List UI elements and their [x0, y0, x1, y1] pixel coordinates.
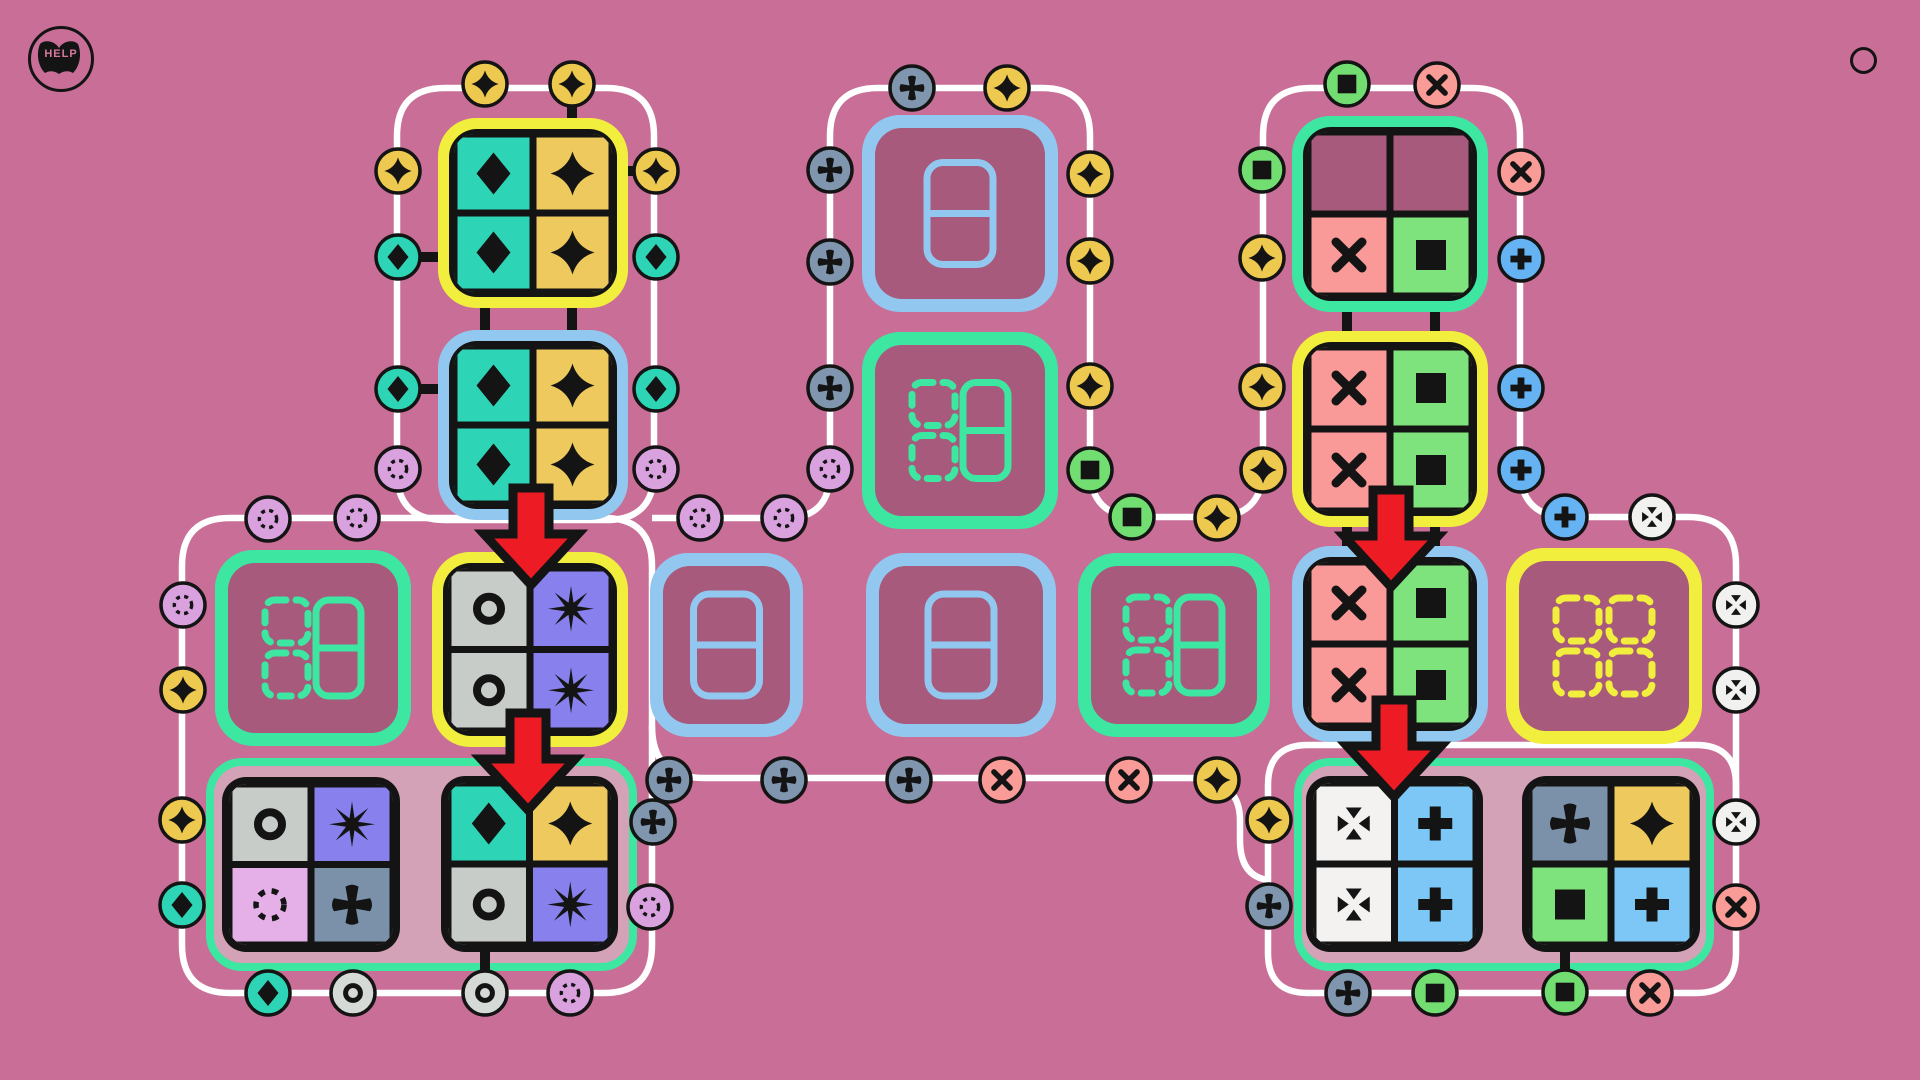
ring-badge	[463, 971, 507, 1015]
diamond-badge	[376, 235, 420, 279]
star4-badge	[1068, 364, 1112, 408]
cross-badge	[762, 758, 806, 802]
star4-badge	[376, 149, 420, 193]
cross-badge	[1326, 971, 1370, 1015]
converge-badge	[1714, 800, 1758, 844]
tile-cell	[1390, 132, 1472, 214]
empty-slot-M1[interactable]	[862, 115, 1058, 312]
plus-badge	[1543, 495, 1587, 539]
cross-badge	[1247, 884, 1291, 928]
square-badge	[1543, 970, 1587, 1014]
square-icon	[1416, 240, 1446, 270]
empty-slot-T1[interactable]	[650, 553, 803, 737]
empty-slot-M2[interactable]	[862, 332, 1058, 529]
star4-badge	[1241, 448, 1285, 492]
diamond-badge	[634, 235, 678, 279]
tile-cell	[1308, 132, 1390, 214]
empty-slot-E1[interactable]	[215, 550, 411, 746]
domino-tile-C1[interactable]	[222, 777, 400, 952]
square-badge	[1240, 148, 1284, 192]
star4-badge	[1195, 758, 1239, 802]
burst-icon	[329, 801, 375, 847]
domino-tile-D2[interactable]	[1522, 776, 1700, 952]
x-badge	[1628, 971, 1672, 1015]
star4-badge	[985, 66, 1029, 110]
plus-badge	[1499, 448, 1543, 492]
star4-badge	[160, 798, 204, 842]
dotring-badge	[376, 447, 420, 491]
cross-badge	[808, 148, 852, 192]
diamond-badge	[160, 883, 204, 927]
tile-cell	[229, 784, 311, 865]
tile-cell	[229, 865, 311, 946]
star4-badge	[1195, 496, 1239, 540]
dotring-badge	[678, 496, 722, 540]
diamond-badge	[376, 367, 420, 411]
star4-badge	[1240, 365, 1284, 409]
cross-badge	[890, 66, 934, 110]
burst-icon	[548, 586, 594, 632]
burst-icon	[547, 882, 593, 928]
star4-badge	[1240, 236, 1284, 280]
square-badge	[1110, 495, 1154, 539]
star4-badge	[1068, 152, 1112, 196]
star4-badge	[550, 62, 594, 106]
empty-slot-T2[interactable]	[866, 553, 1056, 737]
cross-badge	[808, 240, 852, 284]
plus-badge	[1499, 237, 1543, 281]
star4-badge	[634, 149, 678, 193]
tile-cell	[1313, 864, 1395, 945]
help-label: HELP	[31, 48, 91, 60]
domino-tile-R1[interactable]	[1292, 116, 1488, 312]
track-path	[652, 726, 1268, 880]
x-badge	[980, 758, 1024, 802]
ring-badge	[331, 971, 375, 1015]
corner-ring-button[interactable]	[1850, 47, 1877, 74]
cross-badge	[631, 800, 675, 844]
dotring-badge	[161, 583, 205, 627]
square-badge	[1325, 62, 1369, 106]
tile-cell	[1313, 783, 1395, 864]
square-icon	[1416, 588, 1446, 618]
dotring-badge	[634, 447, 678, 491]
star4-badge	[1247, 798, 1291, 842]
converge-badge	[1714, 668, 1758, 712]
dotring-badge	[762, 496, 806, 540]
dotring-badge	[628, 885, 672, 929]
star4-badge	[1068, 239, 1112, 283]
game-stage: HELP	[0, 0, 1920, 1080]
star4-badge	[463, 62, 507, 106]
tile-cell	[448, 864, 530, 945]
converge-badge	[1714, 583, 1758, 627]
empty-slot-E2[interactable]	[1506, 548, 1702, 744]
x-badge	[1499, 150, 1543, 194]
square-badge	[1068, 448, 1112, 492]
help-button[interactable]: HELP	[28, 26, 94, 92]
x-badge	[1107, 758, 1151, 802]
empty-slot-T3[interactable]	[1078, 553, 1270, 737]
x-badge	[1415, 63, 1459, 107]
square-icon	[1416, 373, 1446, 403]
plus-badge	[1499, 366, 1543, 410]
square-badge	[1413, 971, 1457, 1015]
x-badge	[1714, 885, 1758, 929]
dotring-badge	[808, 447, 852, 491]
dotring-badge	[548, 971, 592, 1015]
square-icon	[1555, 890, 1585, 920]
diamond-badge	[246, 971, 290, 1015]
domino-tile-A1[interactable]	[438, 118, 628, 308]
burst-icon	[548, 667, 594, 713]
tile-cell	[448, 568, 530, 650]
square-icon	[1416, 670, 1446, 700]
dotring-badge	[335, 496, 379, 540]
star4-badge	[161, 668, 205, 712]
cross-badge	[647, 758, 691, 802]
diamond-badge	[634, 367, 678, 411]
dotring-badge	[246, 497, 290, 541]
square-icon	[1416, 455, 1446, 485]
converge-badge	[1630, 495, 1674, 539]
cross-badge	[887, 758, 931, 802]
cross-badge	[808, 366, 852, 410]
